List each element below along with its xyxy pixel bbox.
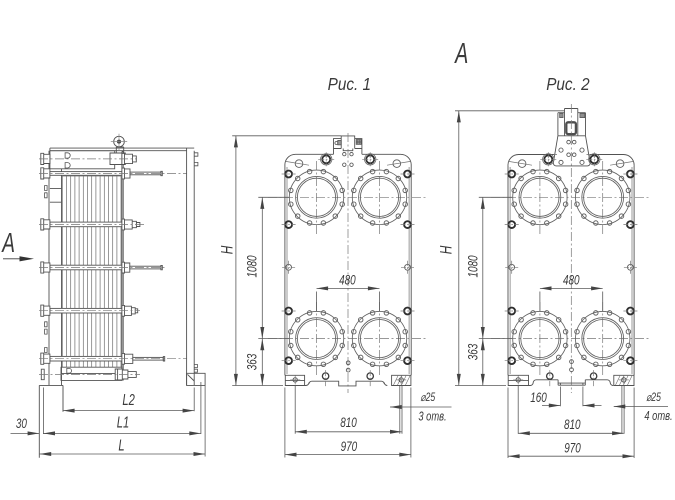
svg-text:4 отв.: 4 отв. — [644, 410, 672, 424]
svg-text:⌀25: ⌀25 — [646, 392, 661, 404]
svg-text:480: 480 — [339, 272, 356, 288]
svg-text:Н: Н — [219, 245, 237, 254]
svg-text:L2: L2 — [122, 391, 135, 408]
svg-text:L: L — [118, 437, 124, 454]
svg-text:Н: Н — [438, 245, 456, 254]
svg-text:363: 363 — [244, 353, 260, 370]
svg-text:⌀25: ⌀25 — [420, 392, 435, 404]
svg-text:970: 970 — [564, 440, 581, 456]
svg-text:1080: 1080 — [465, 255, 481, 277]
svg-text:А: А — [1, 227, 15, 259]
svg-text:480: 480 — [563, 272, 580, 288]
svg-text:L1: L1 — [117, 414, 129, 431]
svg-text:А: А — [454, 38, 469, 70]
svg-text:810: 810 — [340, 414, 357, 430]
svg-text:970: 970 — [341, 438, 358, 454]
svg-text:363: 363 — [465, 343, 481, 360]
svg-text:160: 160 — [530, 390, 547, 406]
svg-text:30: 30 — [16, 415, 27, 431]
svg-text:1080: 1080 — [244, 255, 260, 277]
svg-text:3 отв.: 3 отв. — [418, 410, 446, 424]
svg-text:Рис. 2: Рис. 2 — [546, 74, 590, 94]
svg-text:810: 810 — [564, 416, 581, 432]
svg-text:Рис. 1: Рис. 1 — [328, 74, 371, 94]
